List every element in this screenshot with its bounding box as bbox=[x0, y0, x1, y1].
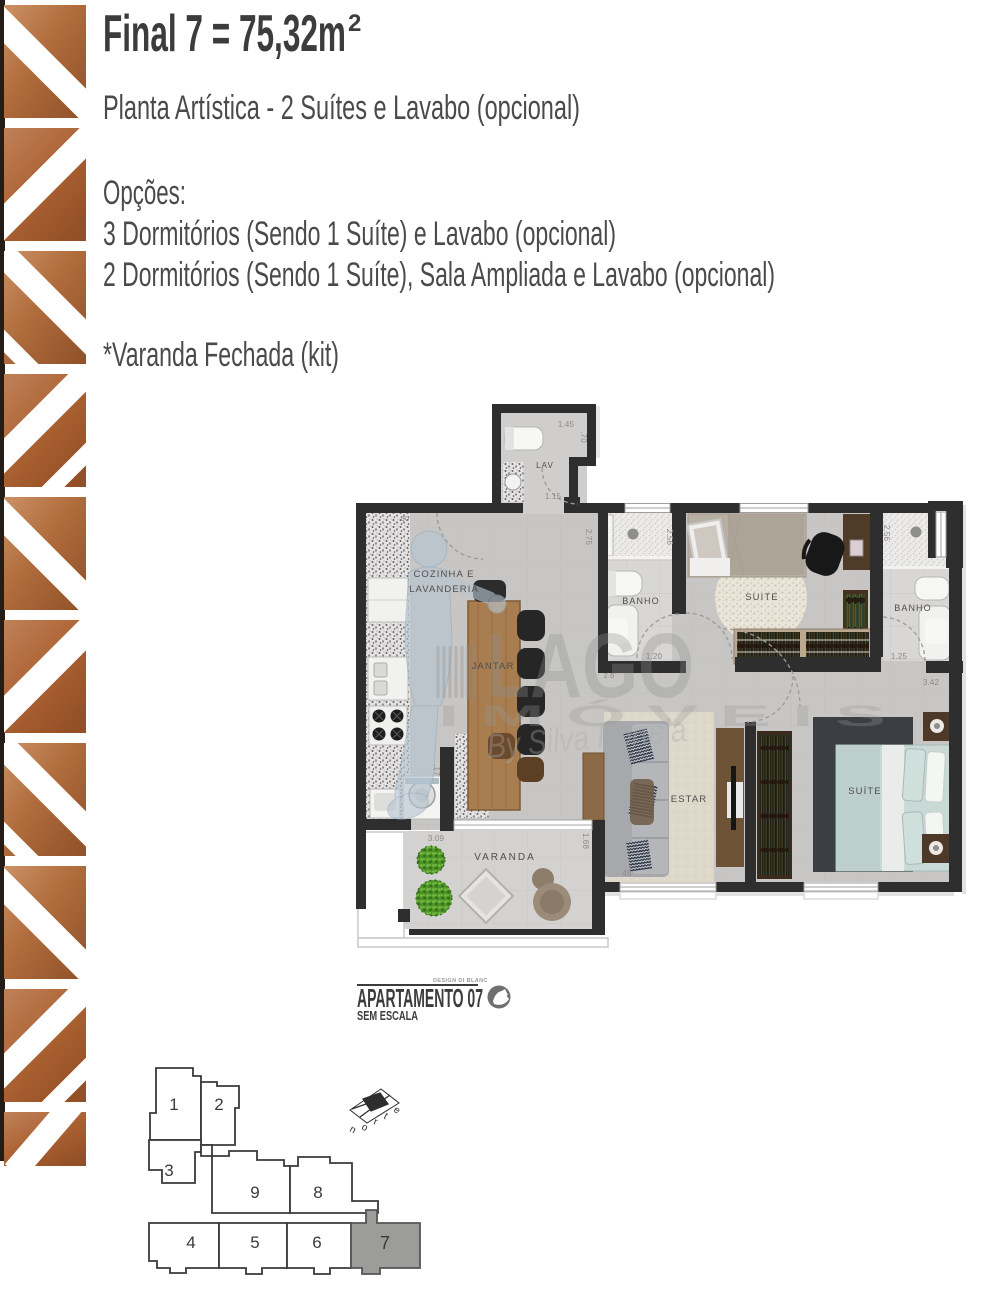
svg-text:JANTAR: JANTAR bbox=[472, 661, 515, 672]
svg-text:4: 4 bbox=[186, 1233, 195, 1252]
svg-text:2.6: 2.6 bbox=[603, 671, 614, 680]
svg-text:1.25: 1.25 bbox=[891, 652, 908, 661]
svg-text:VARANDA: VARANDA bbox=[474, 852, 536, 863]
svg-text:2 Dormitórios (Sendo 1 Suíte),: 2 Dormitórios (Sendo 1 Suíte), Sala Ampl… bbox=[103, 256, 775, 294]
svg-text:*Varanda Fechada (kit): *Varanda Fechada (kit) bbox=[103, 336, 339, 374]
svg-text:2.56: 2.56 bbox=[882, 525, 891, 542]
svg-text:SUITE: SUITE bbox=[745, 592, 778, 603]
svg-text:3.09: 3.09 bbox=[428, 834, 445, 843]
svg-text:45: 45 bbox=[622, 869, 632, 878]
svg-text:2.75: 2.75 bbox=[584, 529, 593, 546]
svg-text:1.45: 1.45 bbox=[558, 420, 575, 429]
svg-text:COZINHA E: COZINHA E bbox=[413, 569, 474, 580]
svg-text:Opções:: Opções: bbox=[103, 174, 186, 212]
svg-text:3 Dormitórios (Sendo 1 Suíte): 3 Dormitórios (Sendo 1 Suíte) e Lavabo (… bbox=[103, 215, 616, 253]
svg-text:o: o bbox=[360, 1122, 370, 1134]
svg-text:90: 90 bbox=[401, 514, 410, 523]
svg-text:1.15: 1.15 bbox=[545, 492, 562, 501]
svg-text:ESTAR: ESTAR bbox=[671, 794, 707, 805]
svg-text:7: 7 bbox=[380, 1233, 390, 1253]
svg-text:Final 7 = 75,32m: Final 7 = 75,32m bbox=[103, 5, 346, 63]
svg-text:SUÍTE: SUÍTE bbox=[848, 786, 881, 797]
svg-text:3: 3 bbox=[164, 1161, 173, 1180]
svg-text:1.68: 1.68 bbox=[581, 833, 590, 850]
svg-text:r: r bbox=[372, 1116, 380, 1128]
svg-text:.17: .17 bbox=[432, 764, 441, 776]
svg-text:6: 6 bbox=[312, 1233, 321, 1252]
svg-text:SEM ESCALA: SEM ESCALA bbox=[357, 1008, 418, 1023]
svg-text:9: 9 bbox=[250, 1183, 259, 1202]
svg-text:LAVANDERIA: LAVANDERIA bbox=[409, 584, 479, 595]
svg-text:2.56: 2.56 bbox=[665, 529, 674, 546]
svg-text:5: 5 bbox=[250, 1233, 259, 1252]
svg-text:1.20: 1.20 bbox=[646, 652, 663, 661]
svg-text:Planta Artística - 2 Suítes e: Planta Artística - 2 Suítes e Lavabo (op… bbox=[103, 89, 580, 127]
svg-text:BANHO: BANHO bbox=[622, 596, 660, 606]
svg-text:n: n bbox=[348, 1124, 358, 1136]
svg-text:2: 2 bbox=[348, 10, 361, 37]
svg-text:8: 8 bbox=[313, 1183, 322, 1202]
svg-text:1: 1 bbox=[169, 1095, 178, 1114]
svg-text:.70: .70 bbox=[579, 431, 588, 443]
svg-text:2: 2 bbox=[214, 1095, 223, 1114]
svg-text:LAV: LAV bbox=[536, 461, 554, 470]
svg-text:BANHO: BANHO bbox=[894, 603, 932, 613]
svg-text:3.42: 3.42 bbox=[923, 678, 940, 687]
